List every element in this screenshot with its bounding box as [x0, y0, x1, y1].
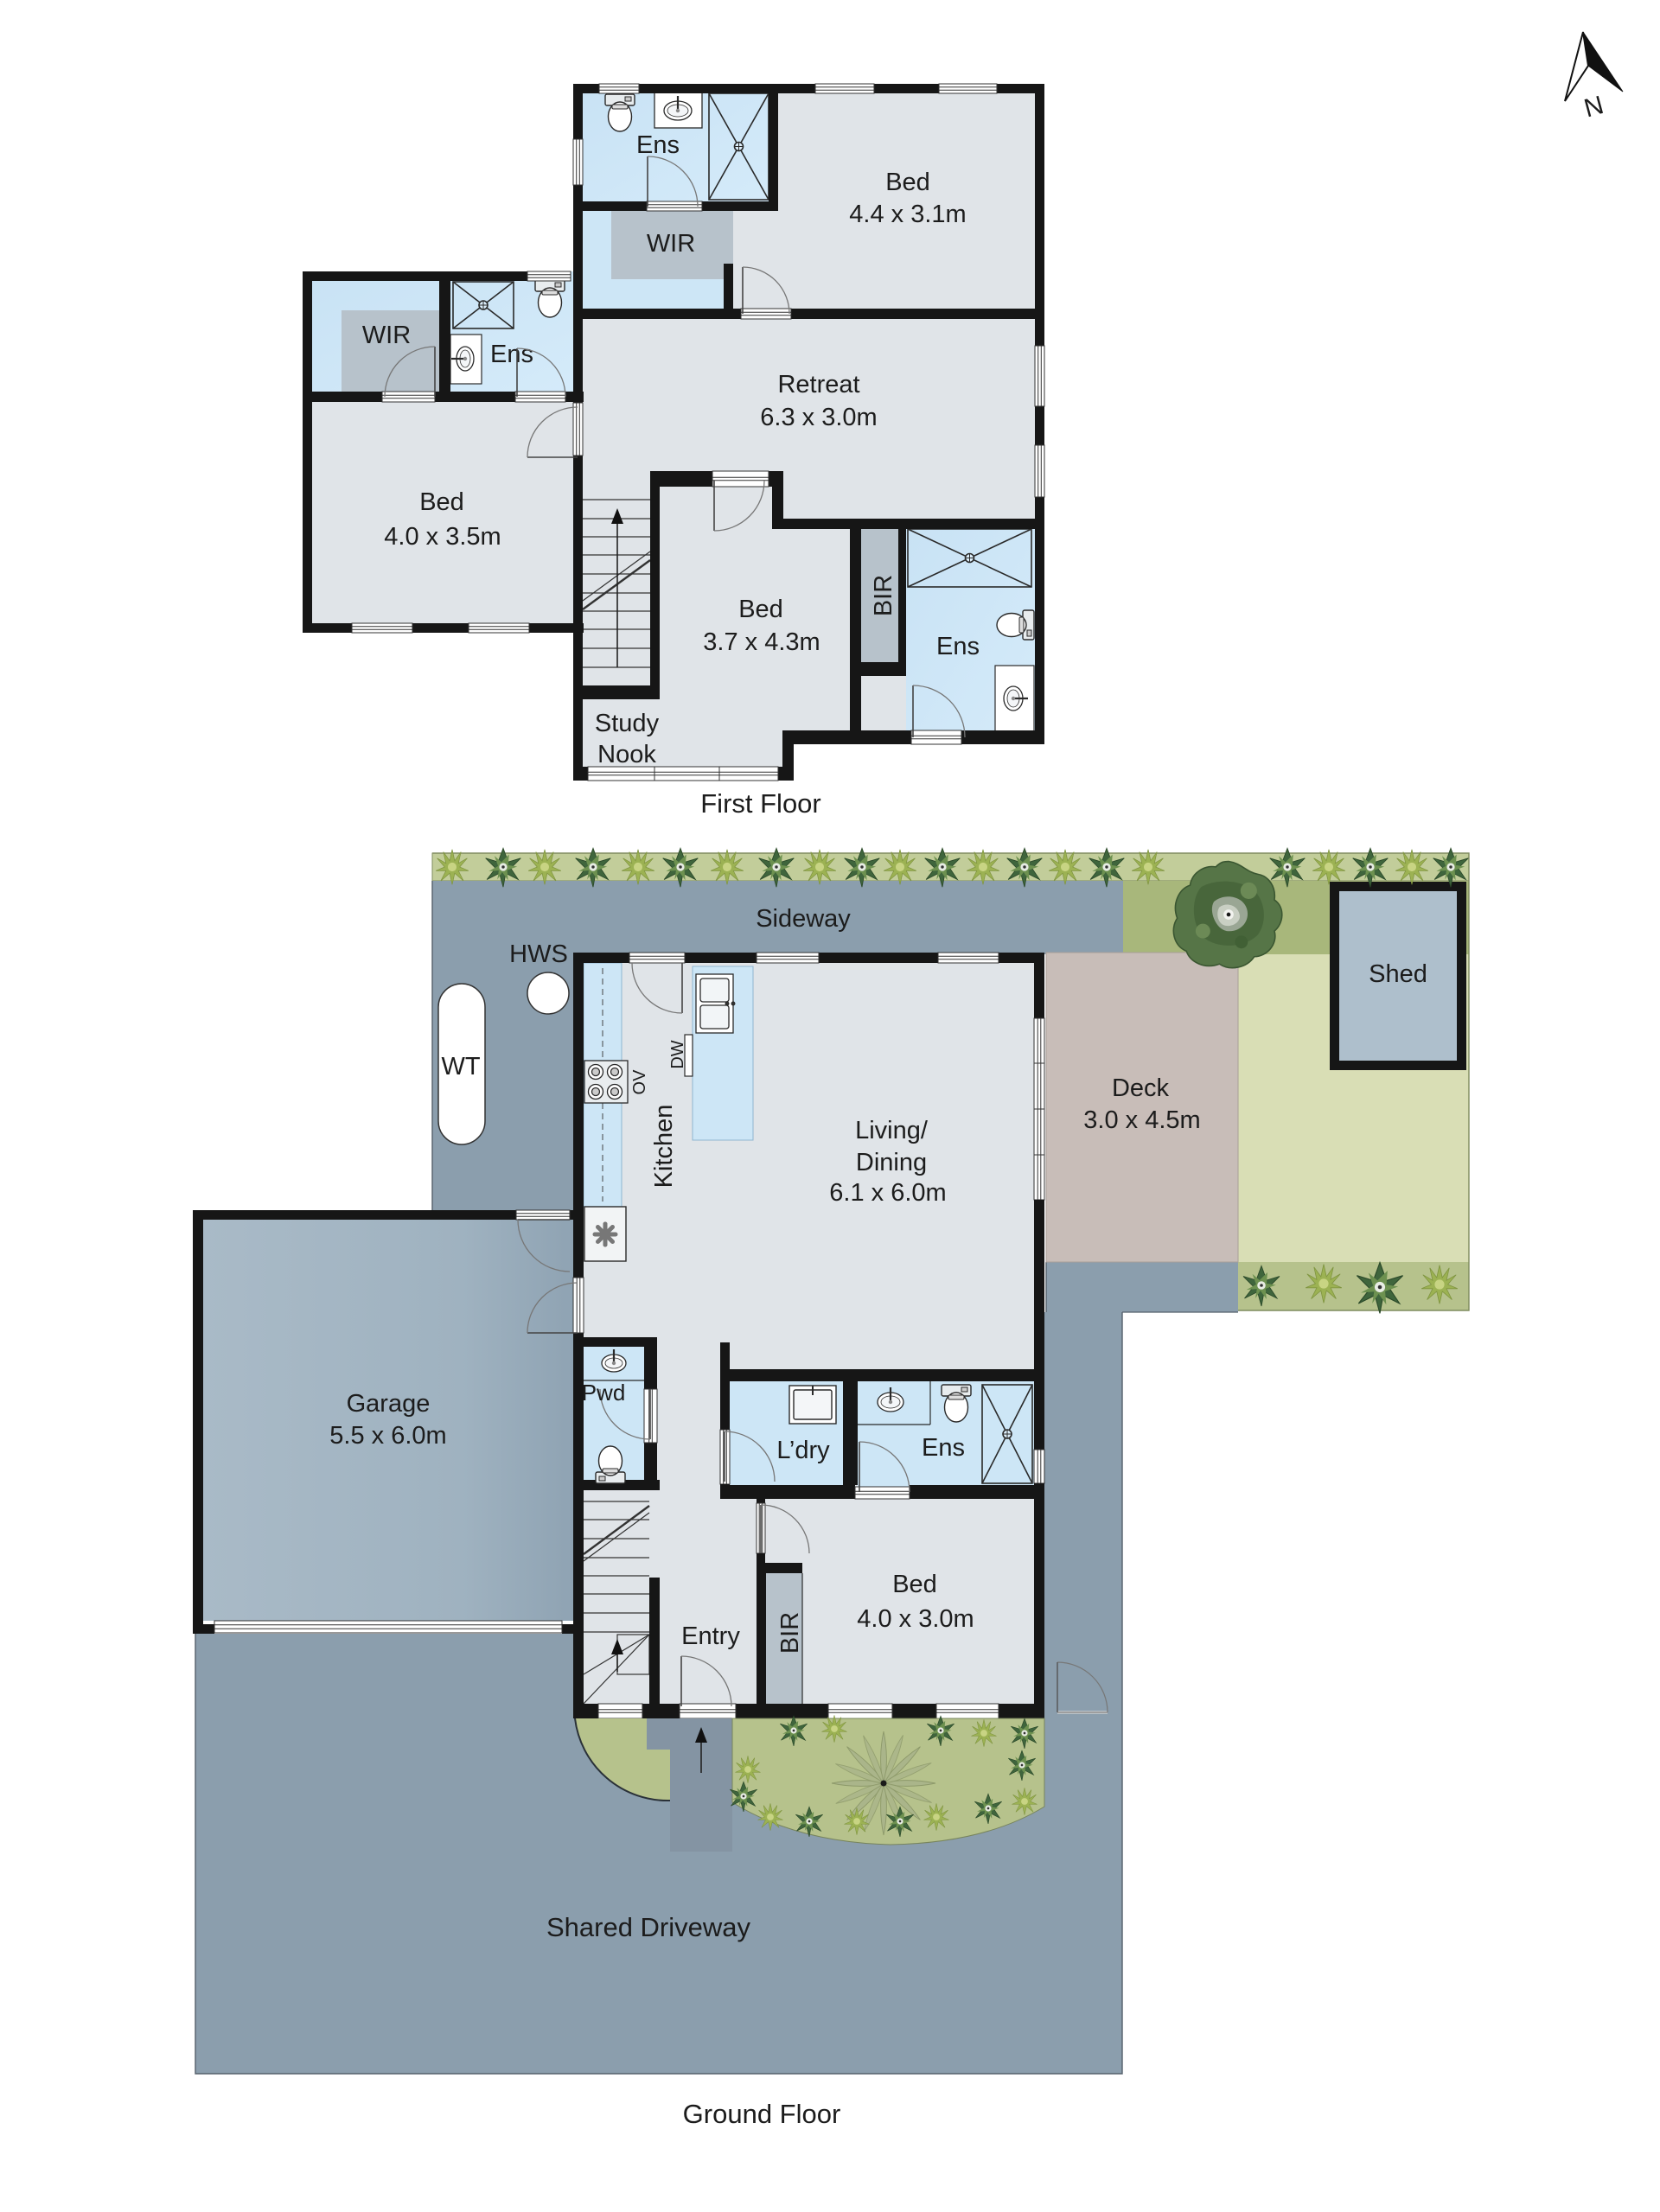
svg-text:Pwd: Pwd — [582, 1380, 626, 1406]
svg-text:WIR: WIR — [647, 230, 695, 258]
svg-text:4.4 x 3.1m: 4.4 x 3.1m — [849, 201, 966, 228]
svg-text:Kitchen: Kitchen — [650, 1105, 678, 1189]
svg-text:WT: WT — [441, 1053, 480, 1081]
svg-text:L’dry: L’dry — [776, 1437, 830, 1464]
svg-text:Shared Driveway: Shared Driveway — [546, 1912, 751, 1942]
svg-text:BIR: BIR — [870, 575, 897, 616]
svg-text:Bed: Bed — [885, 169, 930, 196]
svg-text:Study: Study — [595, 710, 660, 737]
svg-text:3.7 x 4.3m: 3.7 x 4.3m — [703, 628, 820, 656]
svg-text:Retreat: Retreat — [777, 371, 859, 398]
svg-text:Bed: Bed — [892, 1571, 937, 1598]
svg-text:Ground Floor: Ground Floor — [683, 2099, 841, 2129]
svg-text:BIR: BIR — [776, 1612, 804, 1654]
svg-text:Nook: Nook — [597, 741, 656, 768]
svg-text:WIR: WIR — [362, 322, 411, 349]
svg-text:Entry: Entry — [681, 1622, 740, 1650]
svg-text:Deck: Deck — [1112, 1074, 1170, 1102]
svg-text:Ens: Ens — [490, 341, 533, 368]
svg-text:Living/: Living/ — [855, 1117, 929, 1144]
svg-text:Ens: Ens — [636, 131, 680, 159]
svg-text:6.1 x 6.0m: 6.1 x 6.0m — [829, 1179, 946, 1207]
svg-text:Sideway: Sideway — [756, 905, 851, 933]
svg-text:Bed: Bed — [419, 488, 464, 516]
svg-text:HWS: HWS — [509, 940, 568, 968]
svg-text:OV: OV — [630, 1069, 649, 1095]
svg-text:DW: DW — [668, 1040, 687, 1068]
svg-text:6.3 x 3.0m: 6.3 x 3.0m — [760, 404, 877, 431]
svg-text:First Floor: First Floor — [700, 788, 821, 819]
svg-text:Shed: Shed — [1369, 960, 1427, 988]
svg-text:Dining: Dining — [856, 1149, 927, 1176]
svg-text:4.0 x 3.5m: 4.0 x 3.5m — [384, 523, 501, 551]
svg-text:Bed: Bed — [738, 596, 783, 623]
svg-text:Garage: Garage — [347, 1390, 431, 1418]
svg-text:4.0 x 3.0m: 4.0 x 3.0m — [857, 1605, 974, 1633]
svg-text:5.5 x 6.0m: 5.5 x 6.0m — [329, 1422, 446, 1450]
svg-text:Ens: Ens — [936, 633, 980, 660]
svg-text:3.0 x 4.5m: 3.0 x 4.5m — [1083, 1106, 1200, 1134]
svg-text:Ens: Ens — [922, 1434, 965, 1462]
